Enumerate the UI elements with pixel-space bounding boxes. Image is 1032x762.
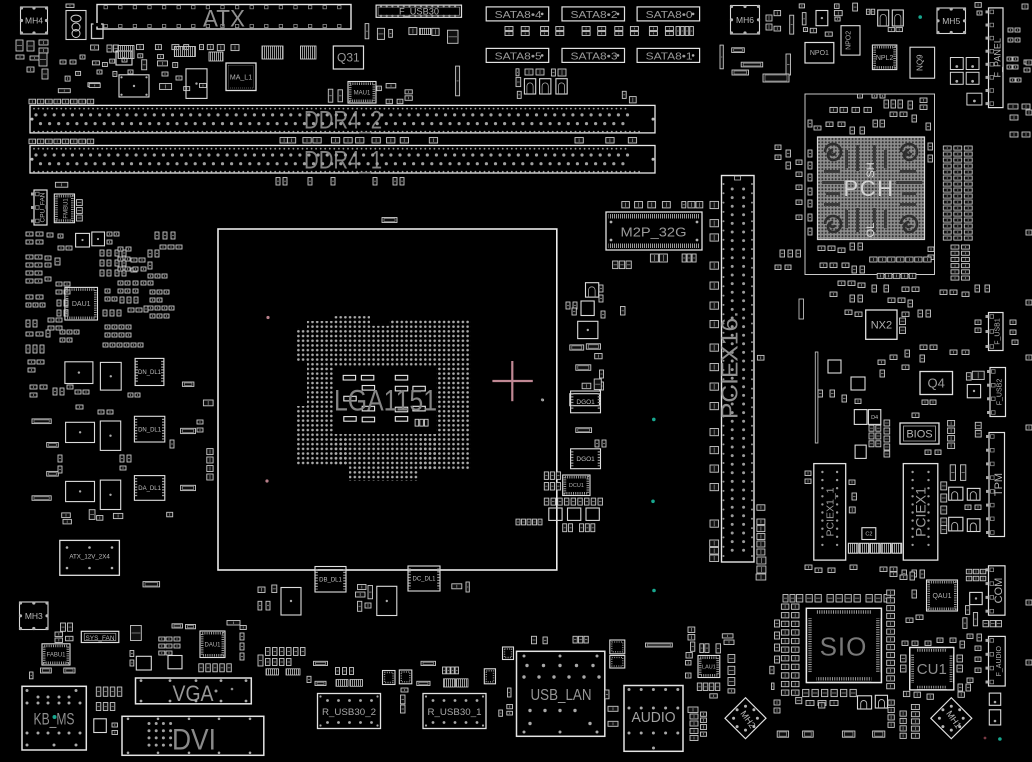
svg-text:CPU_FAN: CPU_FAN [39,192,46,222]
svg-text:C2: C2 [865,532,872,538]
svg-text:F_AUDIO: F_AUDIO [996,645,1003,676]
svg-text:Q4: Q4 [928,376,945,391]
svg-text:LGA1151: LGA1151 [334,385,437,418]
svg-text:SATA8•0: SATA8•0 [646,9,693,21]
svg-text:R_USB30_2: R_USB30_2 [322,707,376,718]
svg-text:SH: SH [865,162,877,177]
svg-text:OL: OL [865,223,877,238]
svg-text:DGO1: DGO1 [576,399,595,406]
svg-text:NPL2: NPL2 [876,55,894,62]
svg-text:NPO2: NPO2 [846,31,853,50]
svg-text:MH5: MH5 [942,16,960,26]
svg-text:DN_DL1: DN_DL1 [138,427,162,433]
svg-text:FMBU1: FMBU1 [64,198,70,219]
svg-text:D4: D4 [871,415,878,421]
svg-text:CU1: CU1 [917,661,947,678]
svg-text:F_PANEL: F_PANEL [992,38,1002,77]
svg-text:DAU1: DAU1 [204,642,221,648]
svg-text:SATA8•5: SATA8•5 [495,50,542,62]
svg-text:DB_DL1: DB_DL1 [319,577,342,583]
svg-text:DCU1: DCU1 [569,483,584,489]
svg-text:TPM: TPM [993,473,1005,496]
svg-text:DAU1: DAU1 [72,301,91,308]
svg-text:NPO1: NPO1 [810,50,829,57]
svg-text:M2P_32G: M2P_32G [621,225,687,240]
svg-text:SATA8•4: SATA8•4 [495,9,542,21]
svg-text:QAU1: QAU1 [932,593,951,600]
svg-text:LAU1: LAU1 [702,664,716,670]
svg-text:NX2: NX2 [871,320,892,332]
svg-text:USB_LAN: USB_LAN [531,687,592,704]
svg-text:Q31: Q31 [337,51,360,65]
svg-text:SIO: SIO [820,632,868,662]
svg-text:DDR4_2: DDR4_2 [304,106,382,134]
svg-text:R_USB30_1: R_USB30_1 [428,707,482,718]
svg-text:NQ9: NQ9 [915,54,924,71]
svg-text:MA_L1: MA_L1 [230,75,252,82]
svg-text:MH4: MH4 [25,16,43,26]
svg-text:DN_DL1: DN_DL1 [138,370,162,376]
svg-text:F_USB2: F_USB2 [997,379,1004,406]
svg-text:VGA: VGA [173,681,214,706]
svg-text:MAU1: MAU1 [354,90,371,96]
svg-text:SYS_FAN: SYS_FAN [86,635,115,642]
svg-text:DVI: DVI [172,724,216,757]
svg-text:AUDIO: AUDIO [632,710,676,726]
svg-text:ATX: ATX [203,6,245,33]
svg-text:ATX_12V_2X4: ATX_12V_2X4 [69,554,110,561]
svg-text:PCIEX16.: PCIEX16. [717,311,743,419]
svg-text:DC_DL1: DC_DL1 [412,577,436,583]
svg-text:DGO1: DGO1 [576,456,595,463]
svg-text:SATA8•3: SATA8•3 [571,50,618,62]
svg-text:MH3: MH3 [25,611,43,621]
svg-text:PCIEX1: PCIEX1 [913,487,929,537]
svg-text:BIOS: BIOS [906,429,932,441]
svg-text:MH6: MH6 [736,15,754,25]
svg-text:F_USB1: F_USB1 [995,318,1002,345]
svg-text:KB_MS: KB_MS [34,710,75,729]
svg-text:SATA8•2: SATA8•2 [571,9,618,21]
svg-text:COM: COM [993,578,1005,604]
svg-text:DA_DL1: DA_DL1 [138,486,161,492]
svg-text:SATA8•1: SATA8•1 [646,50,693,62]
svg-text:DDR4_1: DDR4_1 [304,147,382,175]
svg-text:PCH: PCH [844,176,895,201]
svg-text:PCIEX1_1: PCIEX1_1 [825,487,837,536]
svg-text:FABU1: FABU1 [46,653,66,659]
svg-text:F_USB30: F_USB30 [399,6,439,17]
